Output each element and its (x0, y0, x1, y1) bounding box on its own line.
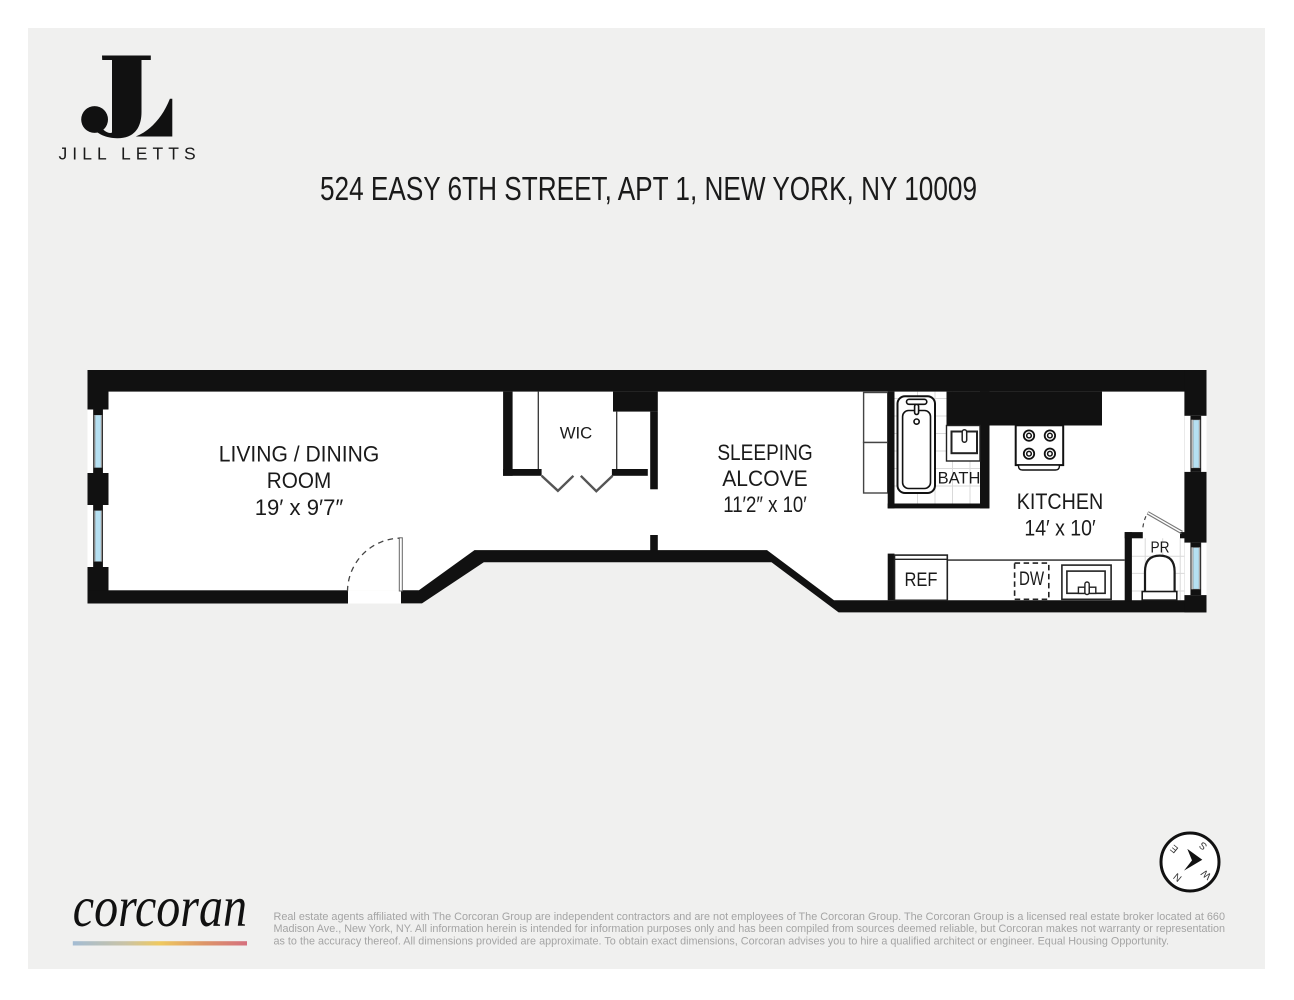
svg-text:Madison Ave., New York, NY. Al: Madison Ave., New York, NY. All informat… (274, 923, 1226, 935)
svg-text:PR: PR (1151, 539, 1170, 556)
svg-text:DW: DW (1019, 569, 1044, 590)
svg-text:19′ x 9′7″: 19′ x 9′7″ (255, 495, 344, 520)
svg-text:SLEEPING: SLEEPING (717, 440, 812, 465)
svg-text:WIC: WIC (560, 423, 593, 442)
svg-text:corcoran: corcoran (73, 876, 247, 939)
svg-text:524 EASY 6TH STREET, APT 1, NE: 524 EASY 6TH STREET, APT 1, NEW YORK, NY… (320, 170, 977, 207)
svg-text:as to the accuracy thereof. Al: as to the accuracy thereof. All dimensio… (274, 935, 1170, 947)
svg-text:REF: REF (905, 570, 938, 591)
svg-text:KITCHEN: KITCHEN (1017, 489, 1104, 514)
svg-text:14′ x 10′: 14′ x 10′ (1024, 515, 1095, 540)
svg-text:Real estate agents affiliated: Real estate agents affiliated with The C… (274, 911, 1226, 923)
svg-text:LIVING / DINING: LIVING / DINING (219, 442, 380, 467)
svg-text:ROOM: ROOM (267, 468, 332, 493)
svg-text:ALCOVE: ALCOVE (722, 466, 808, 491)
svg-text:BATH: BATH (938, 469, 981, 487)
svg-text:11′2″ x 10′: 11′2″ x 10′ (723, 492, 807, 517)
